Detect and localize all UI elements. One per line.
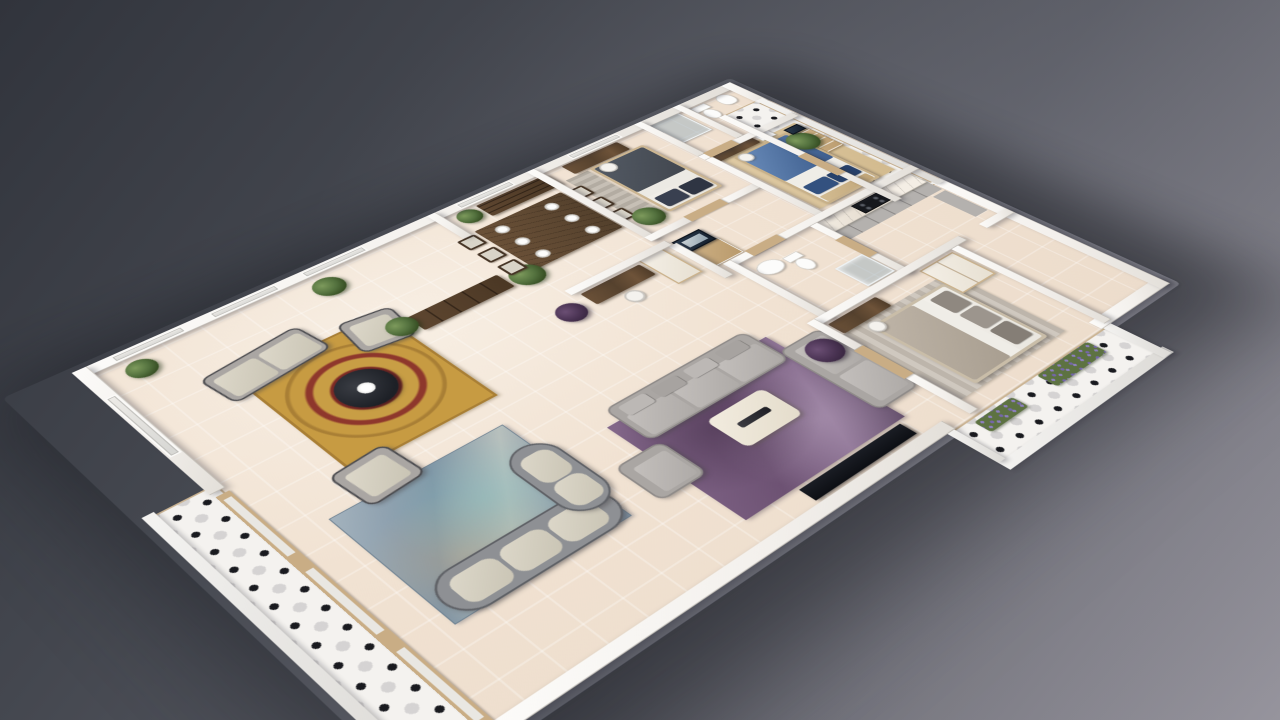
floor-plan (14, 82, 1170, 720)
table-flower-decor (353, 380, 379, 396)
table-decor-bar (736, 406, 772, 428)
render-canvas (0, 0, 1280, 720)
